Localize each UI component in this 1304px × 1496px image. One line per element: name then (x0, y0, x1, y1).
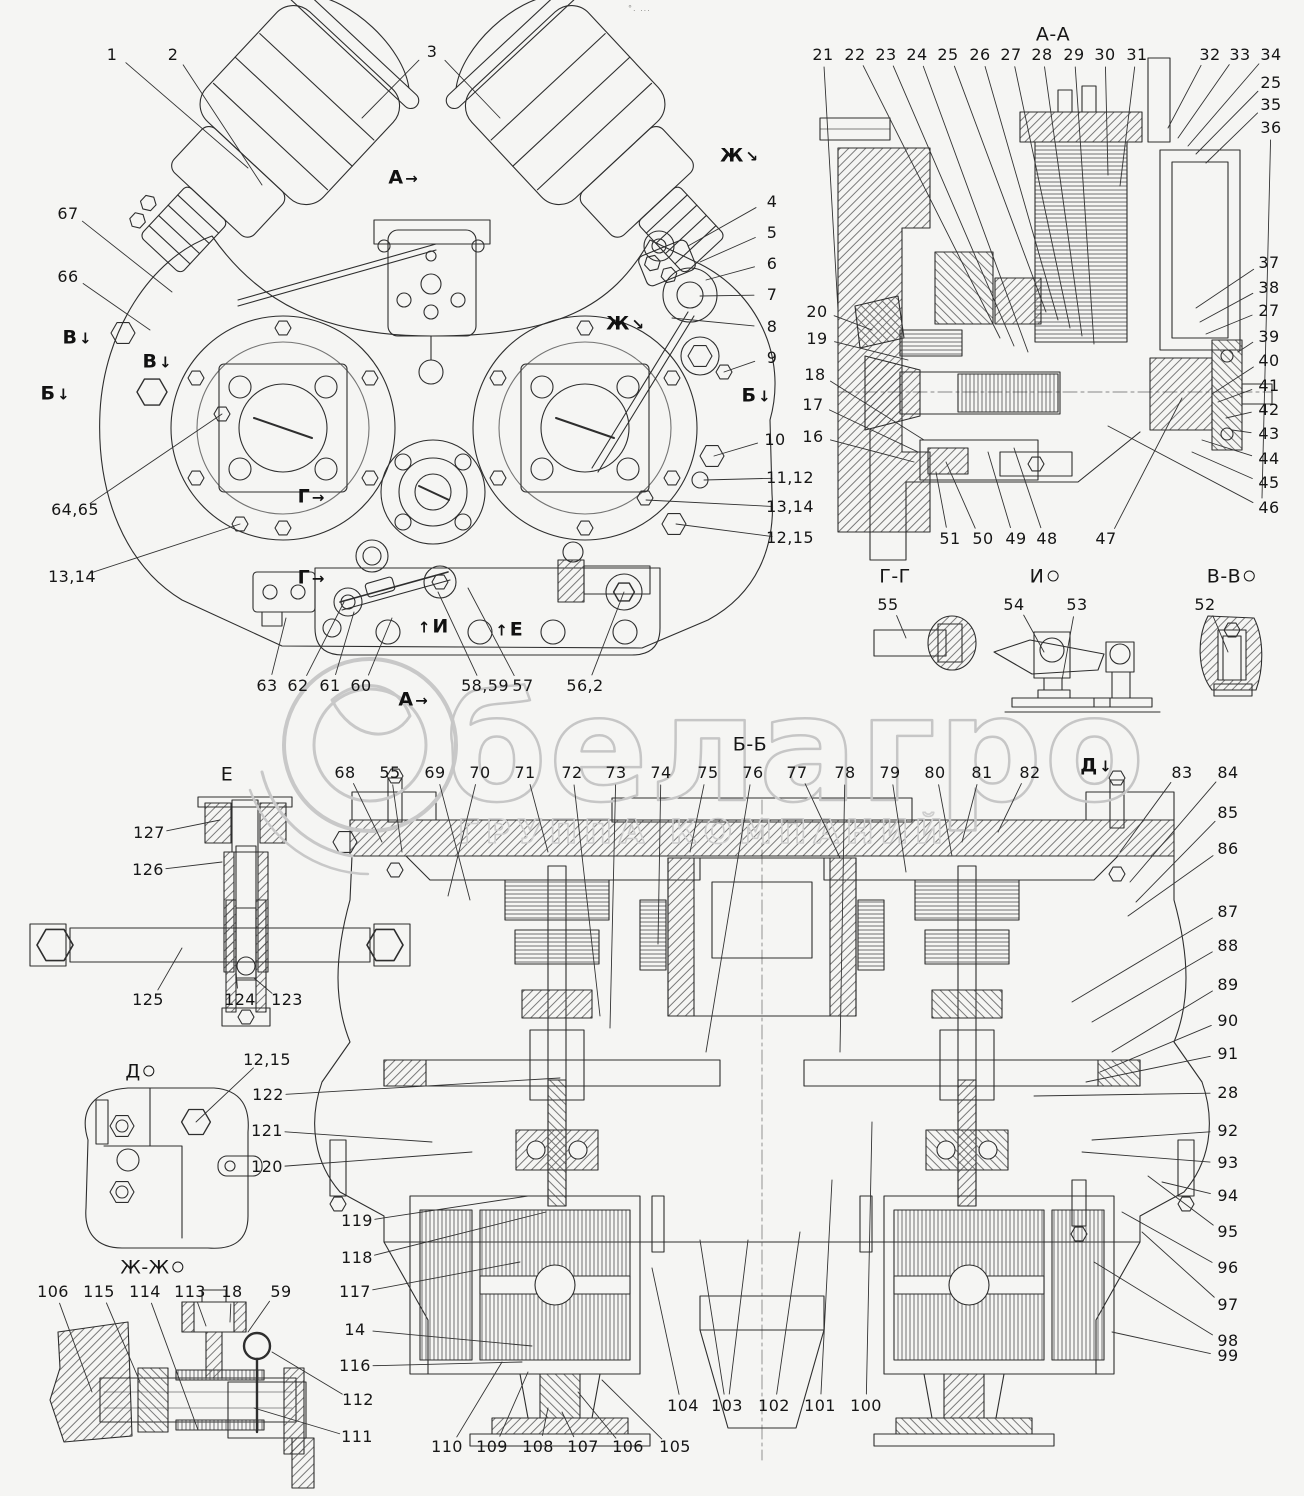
watermark-tagline: ГРУППА КОМПАНИЙ (458, 811, 950, 851)
view-zhzh (50, 1290, 314, 1488)
view-vv (1200, 616, 1262, 696)
section-bb (315, 769, 1210, 1460)
parts-diagram-page: белагро ГРУППА КОМПАНИЙ °. ... 123676664… (0, 0, 1304, 1496)
view-gg (874, 616, 976, 670)
view-d (85, 1088, 262, 1248)
diagram-artwork: белагро ГРУППА КОМПАНИЙ (0, 0, 1304, 1496)
section-aa (820, 58, 1272, 560)
front-view (97, 0, 775, 655)
watermark-brand: белагро (445, 665, 1147, 835)
